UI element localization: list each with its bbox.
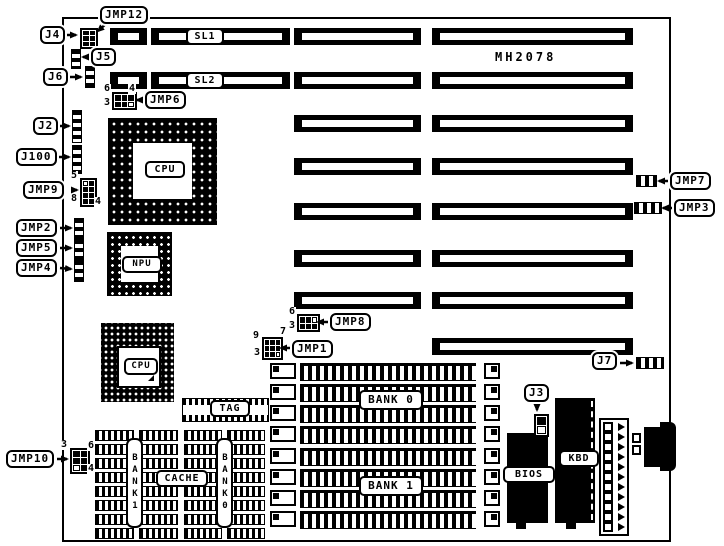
pin-number: 7 [279,327,287,337]
callout-jmp2: JMP2 [16,219,57,237]
callout-j100: J100 [16,148,57,166]
pin-number: 3 [103,98,111,108]
pin-number: 8 [70,194,78,204]
pin-number: 4 [87,464,95,474]
callout-jmp3: JMP3 [674,199,715,217]
pin-number: 3 [253,348,261,358]
callout-jmp6: JMP6 [145,91,186,109]
pin-number: 4 [128,84,136,94]
callout-j7: J7 [592,352,617,370]
callout-j6: J6 [43,68,68,86]
callout-j2: J2 [33,117,58,135]
callout-arrows [0,0,724,546]
pin-number: 5 [70,171,78,181]
callout-jmp12: JMP12 [100,6,148,24]
callout-jmp9: JMP9 [23,181,64,199]
pin-number: 6 [87,441,95,451]
callout-jmp7: JMP7 [670,172,711,190]
callout-jmp4: JMP4 [16,259,57,277]
callout-j4: J4 [40,26,65,44]
callout-jmp1: JMP1 [292,340,333,358]
callout-jmp5: JMP5 [16,239,57,257]
callout-jmp10: JMP10 [6,450,54,468]
pin-number: 6 [103,84,111,94]
pin-number: 9 [252,331,260,341]
pin-number: 4 [94,197,102,207]
callout-j3: J3 [524,384,549,402]
pin-number: 3 [288,321,296,331]
pin-number: 3 [60,440,68,450]
callout-j5: J5 [91,48,116,66]
motherboard-diagram: MH2078 SL1 SL2 CPU NPU CPU TAG BANK1 BAN… [0,0,724,546]
callout-jmp8: JMP8 [330,313,371,331]
pin-number: 6 [288,307,296,317]
